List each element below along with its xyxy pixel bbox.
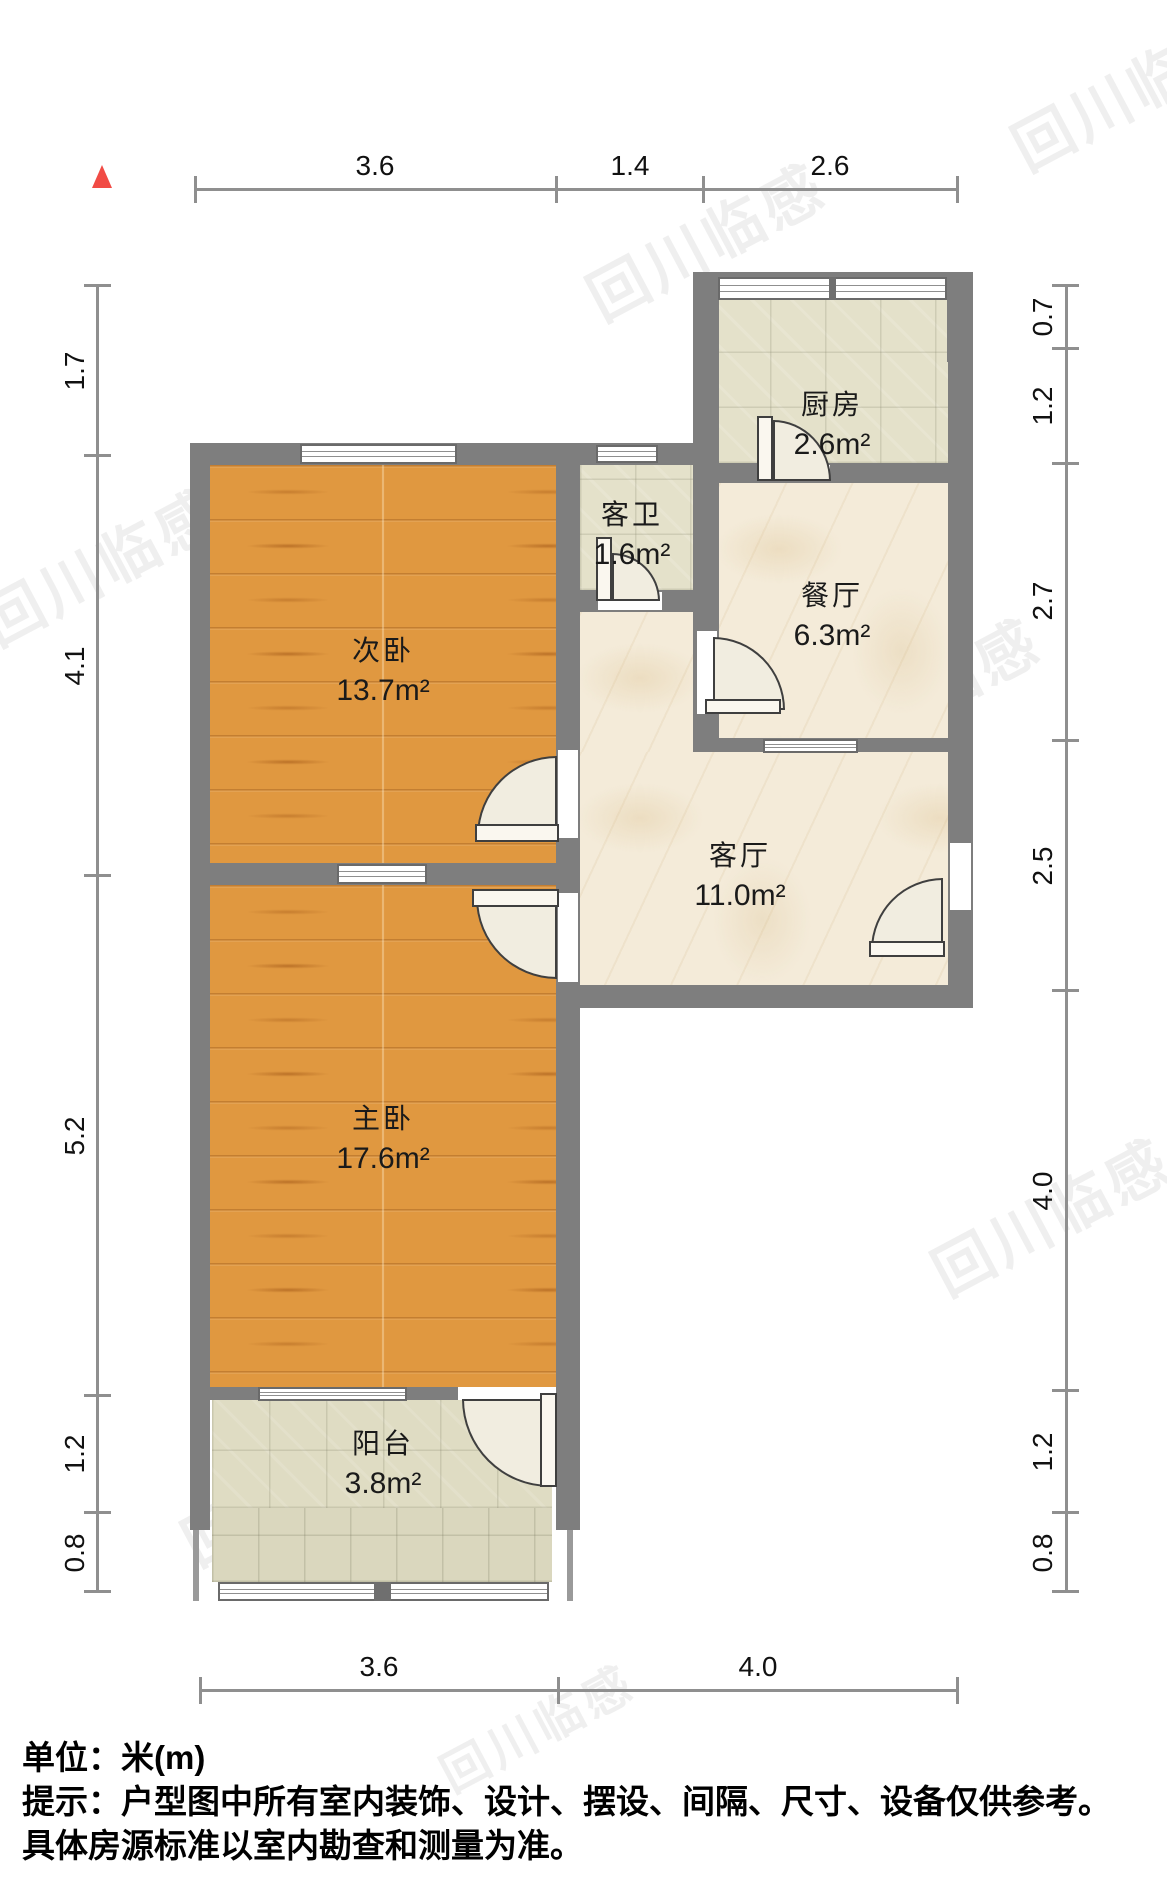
room-label-kitchen: 厨房 2.6m² (732, 383, 932, 462)
dim-value: 1.2 (1027, 1422, 1059, 1482)
room-label-guest-bath: 客卫 1.6m² (532, 493, 732, 572)
tick (1052, 1389, 1079, 1392)
dining-door-leaf-icon (705, 699, 781, 714)
dim-value: 0.8 (1027, 1523, 1059, 1583)
master-bedroom-door-leaf-icon (472, 889, 559, 907)
tick (84, 284, 111, 287)
wall (695, 463, 973, 483)
room-area: 13.7m² (283, 674, 483, 708)
floorplan-image: 回川临感 回川临感 回川临感 回川临感 回川临感 回川临感 回川临感 (0, 0, 1167, 1881)
entry-door-leaf-icon (869, 941, 945, 957)
dim-value: 1.2 (59, 1424, 91, 1484)
dim-value: 3.6 (345, 150, 405, 182)
dim-value: 4.0 (1027, 1161, 1059, 1221)
tip-note-line1: 提示：户型图中所有室内装饰、设计、摆设、间隔、尺寸、设备仅供参考。 (22, 1780, 1111, 1824)
dim-value: 1.7 (59, 341, 91, 401)
tick (956, 1677, 959, 1704)
tick (1052, 1511, 1079, 1514)
room-area: 17.6m² (283, 1142, 483, 1176)
room-name: 次卧 (283, 629, 483, 669)
room-label-dining: 餐厅 6.3m² (732, 574, 932, 653)
dim-value: 1.2 (1027, 376, 1059, 436)
room-name: 餐厅 (732, 574, 932, 614)
room-label-master-bedroom: 主卧 17.6m² (283, 1097, 483, 1176)
tick (84, 1394, 111, 1397)
entry-door-opening (950, 843, 971, 910)
dim-value: 4.0 (728, 1651, 788, 1683)
bedroom-divider-opening-icon (337, 864, 427, 884)
terrace-rail (193, 1530, 199, 1601)
secondary-bedroom-window-icon (300, 444, 457, 464)
room-area: 11.0m² (640, 879, 840, 913)
tick (194, 176, 197, 203)
tick (702, 176, 705, 203)
master-balcony-window-icon (258, 1387, 407, 1401)
dim-value: 0.8 (59, 1523, 91, 1583)
wall (190, 443, 210, 1530)
room-name: 厨房 (732, 383, 932, 423)
tick (1052, 1590, 1079, 1593)
room-name: 客厅 (640, 834, 840, 874)
tick (1052, 739, 1079, 742)
balcony-door-leaf-icon (540, 1393, 557, 1487)
master-bedroom-door-opening (558, 893, 578, 982)
tick (555, 176, 558, 203)
window-mullion (829, 277, 836, 300)
dim-value: 3.6 (349, 1651, 409, 1683)
dining-living-window-icon (763, 739, 858, 753)
tip-note-line2: 具体房源标准以室内勘查和测量为准。 (22, 1824, 1111, 1868)
tick (557, 1677, 560, 1704)
room-label-living: 客厅 11.0m² (640, 834, 840, 913)
secondary-bedroom-door-opening (558, 750, 578, 838)
room-area: 6.3m² (732, 619, 932, 653)
tick (1052, 989, 1079, 992)
room-label-secondary-bedroom: 次卧 13.7m² (283, 629, 483, 708)
room-label-balcony: 阳台 3.8m² (283, 1422, 483, 1501)
room-name: 主卧 (283, 1097, 483, 1137)
tick (84, 1511, 111, 1514)
dim-value: 5.2 (59, 1106, 91, 1166)
tick (84, 454, 111, 457)
dim-value: 0.7 (1027, 287, 1059, 347)
wall (556, 985, 973, 1008)
secondary-bedroom-door-leaf-icon (475, 824, 559, 842)
footer-notes: 单位：米(m) 提示：户型图中所有室内装饰、设计、摆设、间隔、尺寸、设备仅供参考… (22, 1736, 1111, 1868)
tick (1052, 347, 1079, 350)
lower-terrace-floor (212, 1508, 552, 1582)
watermark: 回川临感 (995, 0, 1167, 188)
dimension-line (200, 1689, 958, 1692)
wall (556, 443, 580, 1530)
window-mullion (374, 1582, 391, 1601)
dim-value: 2.5 (1027, 836, 1059, 896)
room-area: 3.8m² (283, 1467, 483, 1501)
tick (199, 1677, 202, 1704)
dimension-line (195, 188, 958, 191)
tick (84, 1590, 111, 1593)
room-area: 1.6m² (532, 538, 732, 572)
tick (84, 874, 111, 877)
dim-value: 2.6 (800, 150, 860, 182)
unit-note: 单位：米(m) (22, 1736, 1111, 1780)
dim-value: 4.1 (59, 636, 91, 696)
room-name: 客卫 (532, 493, 732, 533)
room-area: 2.6m² (732, 428, 932, 462)
dim-value: 1.4 (600, 150, 660, 182)
room-name: 阳台 (283, 1422, 483, 1462)
terrace-rail (567, 1530, 573, 1601)
dim-value: 2.7 (1027, 571, 1059, 631)
tick (1052, 462, 1079, 465)
north-arrow-icon (92, 165, 112, 188)
tick (956, 176, 959, 203)
guest-bath-window-icon (596, 445, 658, 463)
dimension-line (1065, 285, 1068, 1592)
